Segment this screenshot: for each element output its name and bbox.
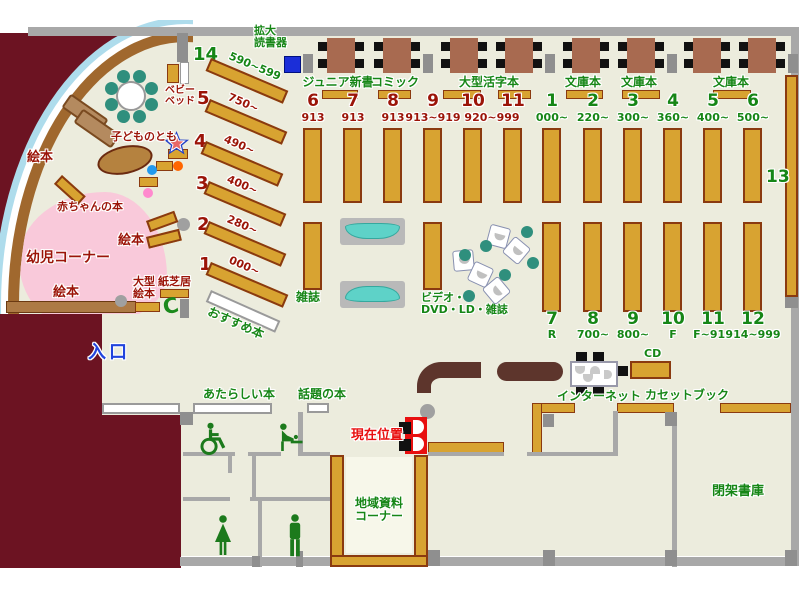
shelf-number: 9 <box>627 311 639 329</box>
closed-stacks-label: 閉架書庫 <box>712 485 764 499</box>
internet-shelf <box>532 403 542 456</box>
wall-stub <box>665 412 677 426</box>
shelf-range: 920~999 <box>464 112 519 124</box>
shelf-range: 500~ <box>737 112 769 124</box>
shelf-column <box>343 128 362 203</box>
shelf-range: 913 <box>302 112 325 124</box>
chair <box>684 59 693 68</box>
local-materials-label: 地域資料コーナー <box>355 497 403 522</box>
shelf-range: R <box>548 329 556 341</box>
man-icon <box>284 514 306 558</box>
chair <box>721 42 730 51</box>
reading-table <box>748 38 776 73</box>
chair-dot <box>145 98 158 111</box>
service-counter <box>417 362 481 393</box>
baby-change-icon <box>276 422 304 452</box>
chair-dot <box>480 240 492 252</box>
chair <box>441 59 450 68</box>
large-picture-books-label: 大型絵本 <box>133 276 155 299</box>
wall-corner <box>180 412 193 425</box>
cassette-shelf <box>720 403 791 413</box>
wall-pillar <box>428 550 440 566</box>
chair <box>441 42 450 51</box>
reading-table <box>627 38 655 73</box>
cushion-pink <box>143 188 153 198</box>
shelf-number: 10 <box>461 93 485 111</box>
bench-seat <box>345 286 400 302</box>
baby-bed-shelf <box>167 64 179 83</box>
large-picture-books-shelf <box>135 302 160 312</box>
kamishibai-label: 紙芝居 <box>158 276 191 288</box>
arc-ring <box>8 31 193 314</box>
step-block <box>139 177 158 187</box>
chair <box>618 366 628 376</box>
shelf-number: 7 <box>546 311 558 329</box>
chair-dot <box>521 226 533 238</box>
shelf-column <box>703 222 722 312</box>
chair <box>563 42 572 51</box>
shelf-column <box>703 128 722 203</box>
chair-dot <box>133 70 146 83</box>
shelf-range: 913~919 <box>405 112 460 124</box>
wall-pillar <box>423 54 433 73</box>
chair <box>618 42 627 51</box>
cushion-blue <box>147 165 157 175</box>
shelf-range: F <box>669 329 677 341</box>
chair <box>533 59 542 68</box>
chair-dot <box>117 110 130 123</box>
shelf-column <box>583 222 602 312</box>
internet-seat <box>590 366 600 374</box>
shelf-number: 8 <box>587 311 599 329</box>
shelf-column <box>623 128 642 203</box>
magnifier-reader-device <box>284 56 301 73</box>
seat-mark <box>493 233 505 242</box>
chair <box>739 59 748 68</box>
shelf-range: 220~ <box>577 112 609 124</box>
chair <box>655 42 664 51</box>
wall <box>252 455 256 498</box>
shelf-number: 8 <box>387 93 399 111</box>
shelf-number: 10 <box>661 311 685 329</box>
cassette-label: カセットブック <box>645 389 729 402</box>
shelf-column <box>503 128 522 203</box>
wall <box>600 452 615 456</box>
wall-pillar <box>785 550 797 566</box>
wall <box>613 411 618 456</box>
shelf-column <box>383 128 402 203</box>
shelf-number: 9 <box>427 93 439 111</box>
wall-pillar <box>180 299 189 318</box>
chair <box>478 42 487 51</box>
chair-dot <box>459 249 471 261</box>
seat-mark <box>511 246 523 258</box>
chair <box>355 59 364 68</box>
service-counter <box>497 362 563 381</box>
local-materials-shelf-bottom <box>330 555 428 567</box>
wall-stub <box>543 414 554 427</box>
chair <box>411 42 420 51</box>
wall-pillar <box>788 54 798 73</box>
shelf-range: 300~ <box>617 112 649 124</box>
chair <box>411 59 420 68</box>
chair <box>496 42 505 51</box>
top-wall <box>28 27 791 36</box>
wall-stub <box>785 297 798 308</box>
chair <box>355 42 364 51</box>
chair <box>496 59 505 68</box>
chair-dot <box>105 98 118 111</box>
shelf-column <box>663 128 682 203</box>
shelf-number: 6 <box>747 93 759 111</box>
shelf-number: 4 <box>667 93 679 111</box>
chair-dot <box>527 257 539 269</box>
shelf-range: 400~ <box>697 112 729 124</box>
outside-area-left <box>0 313 102 415</box>
seat-mark <box>491 285 503 297</box>
wall-pillar <box>665 550 677 566</box>
reading-table <box>693 38 721 73</box>
section-label: ジュニア新書 <box>302 76 373 89</box>
wall-pillar <box>303 54 313 73</box>
chair <box>593 352 604 361</box>
shelf-13-label: 13 <box>766 169 790 187</box>
current-position-label: 現在位置 <box>351 429 403 443</box>
shelf-range: 700~ <box>577 329 609 341</box>
chair <box>563 59 572 68</box>
shelf-number: 7 <box>347 93 359 111</box>
shelf-number: 6 <box>307 93 319 111</box>
chair-dot <box>145 82 158 95</box>
topic-books-label: 話題の本 <box>298 388 346 401</box>
outside-area-bottom-left <box>0 415 181 568</box>
entrance-label: 入口 <box>88 344 130 363</box>
wall <box>428 452 504 456</box>
chair-dot <box>133 110 146 123</box>
picture-books-label: 絵本 <box>118 234 144 248</box>
chair <box>374 42 383 51</box>
infant-corner-label: 幼児コーナー <box>26 251 110 266</box>
step-block <box>156 161 173 171</box>
wall <box>303 452 330 456</box>
chair <box>655 59 664 68</box>
wall-pillar <box>545 54 555 73</box>
shelf-column <box>542 222 561 312</box>
topic-books-shelf <box>307 403 329 413</box>
reading-table <box>572 38 600 73</box>
round-table <box>116 81 146 111</box>
shelf-number: 12 <box>741 311 765 329</box>
chair-dot <box>463 290 475 302</box>
seat-mark <box>475 270 488 280</box>
shelf-column <box>542 128 561 203</box>
wall <box>672 426 677 567</box>
chair <box>318 42 327 51</box>
reading-table <box>383 38 411 73</box>
shelf-number: 5 <box>707 93 719 111</box>
shelf-range: 914~999 <box>725 329 780 341</box>
new-books-shelf <box>193 403 272 414</box>
chair-dot <box>499 269 511 281</box>
chair <box>600 42 609 51</box>
picture-books-label: 絵本 <box>27 151 53 165</box>
baby-bed-label: ベビーベッド <box>165 86 195 107</box>
shelf-column <box>303 128 322 203</box>
cd-shelf <box>630 361 671 379</box>
chair <box>739 42 748 51</box>
new-books-label: あたらしい本 <box>203 388 275 401</box>
local-materials-shelf-left <box>330 455 344 567</box>
shelf-column <box>663 222 682 312</box>
shelf-column <box>583 128 602 203</box>
wall <box>183 497 230 501</box>
pillar-dot <box>115 295 127 307</box>
magazines-shelf <box>303 222 322 290</box>
picture-books-label: 絵本 <box>53 286 79 300</box>
bottom-wall <box>180 557 791 566</box>
chair <box>776 59 785 68</box>
wheelchair-icon <box>197 422 227 456</box>
baby-bed <box>180 62 189 84</box>
shelf-column <box>423 128 442 203</box>
cd-label: CD <box>644 348 661 360</box>
new-books-shelf <box>102 403 180 414</box>
section-label: 文庫本 <box>713 76 749 89</box>
shelf-range: 913 <box>342 112 365 124</box>
wall-pillar <box>543 550 555 566</box>
shelf-column <box>743 128 762 203</box>
internet-label: インターネット <box>557 390 641 403</box>
woman-icon <box>212 515 234 557</box>
chair <box>721 59 730 68</box>
chair-dot <box>105 82 118 95</box>
chair <box>533 42 542 51</box>
section-label: コミック <box>371 76 419 89</box>
kodomo-no-tomo-label: 子どものとも <box>111 131 177 143</box>
wall <box>228 452 232 473</box>
local-materials-shelf-right <box>414 455 428 567</box>
wall-stub <box>252 556 260 567</box>
shelf-range: 913 <box>382 112 405 124</box>
baby-books-label: 赤ちゃんの本 <box>57 201 123 213</box>
chair <box>374 59 383 68</box>
chair <box>776 42 785 51</box>
shelf-range: 000~ <box>536 112 568 124</box>
reading-table <box>327 38 355 73</box>
cushion-orange <box>173 161 183 171</box>
shelf-range: 360~ <box>657 112 689 124</box>
shelf-number: 2 <box>587 93 599 111</box>
shelf-column <box>463 128 482 203</box>
chair <box>318 59 327 68</box>
shelf-number: 1 <box>546 93 558 111</box>
reading-table <box>505 38 533 73</box>
chair <box>684 42 693 51</box>
section-label: 文庫本 <box>565 76 601 89</box>
chair <box>600 59 609 68</box>
library-floor-map: 絵本 絵本 絵本 赤ちゃんの本 幼児コーナー 子どものとも ベビーベッド 大型絵… <box>0 0 800 600</box>
reading-table <box>450 38 478 73</box>
shelf-column <box>743 222 762 312</box>
chair <box>576 352 587 361</box>
shelf-range: 800~ <box>617 329 649 341</box>
shelf-number: 11 <box>501 93 525 111</box>
chair-dot <box>117 70 130 83</box>
wall-pillar <box>177 33 188 62</box>
wall-pillar <box>667 54 677 73</box>
section-label: 文庫本 <box>621 76 657 89</box>
magazines-label: 雑誌 <box>296 291 320 304</box>
magnifier-reader-label: 拡大読書器 <box>254 25 287 48</box>
video-shelf <box>423 222 442 290</box>
shelf-column <box>623 222 642 312</box>
shelf-number: 3 <box>627 93 639 111</box>
shelf-number: 11 <box>701 311 725 329</box>
chair <box>478 59 487 68</box>
chair <box>618 59 627 68</box>
section-label: 大型活字本 <box>459 76 519 89</box>
